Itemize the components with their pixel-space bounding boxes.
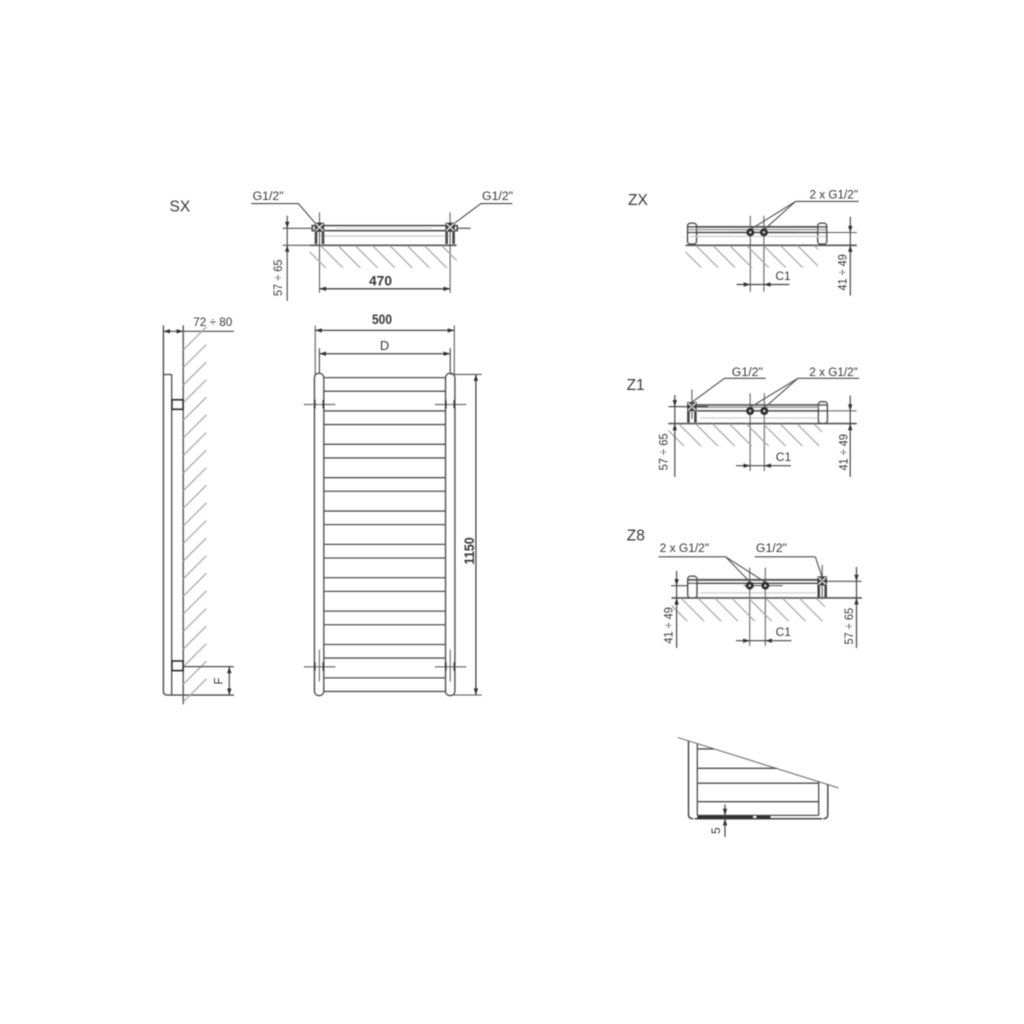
svg-text:G1/2": G1/2" [253, 189, 284, 203]
svg-text:72 ÷ 80: 72 ÷ 80 [193, 315, 232, 329]
svg-text:41 ÷ 49: 41 ÷ 49 [835, 254, 849, 291]
svg-text:2 x G1/2": 2 x G1/2" [810, 188, 859, 202]
svg-text:57 ÷ 65: 57 ÷ 65 [842, 608, 856, 645]
svg-text:1150: 1150 [462, 537, 477, 565]
svg-text:2 x G1/2": 2 x G1/2" [660, 541, 710, 555]
svg-text:5: 5 [709, 827, 723, 834]
svg-text:SX: SX [170, 199, 191, 216]
svg-text:Z1: Z1 [627, 377, 645, 394]
svg-text:G1/2": G1/2" [756, 541, 787, 555]
svg-text:41 ÷ 49: 41 ÷ 49 [837, 434, 851, 471]
svg-text:Z8: Z8 [627, 528, 645, 545]
svg-text:2 x G1/2": 2 x G1/2" [809, 365, 858, 379]
svg-text:C1: C1 [776, 625, 792, 639]
svg-text:500: 500 [372, 312, 392, 327]
svg-text:C1: C1 [776, 450, 792, 464]
svg-text:41 ÷ 49: 41 ÷ 49 [662, 607, 676, 644]
svg-text:470: 470 [369, 272, 392, 288]
svg-text:C1: C1 [775, 269, 791, 283]
svg-text:G1/2": G1/2" [732, 365, 763, 379]
svg-text:D: D [380, 338, 389, 353]
svg-text:G1/2": G1/2" [482, 189, 513, 203]
svg-text:57 ÷ 65: 57 ÷ 65 [657, 433, 671, 470]
svg-text:ZX: ZX [628, 192, 648, 209]
svg-text:57 ÷ 65: 57 ÷ 65 [271, 259, 285, 296]
svg-text:F: F [214, 677, 226, 684]
